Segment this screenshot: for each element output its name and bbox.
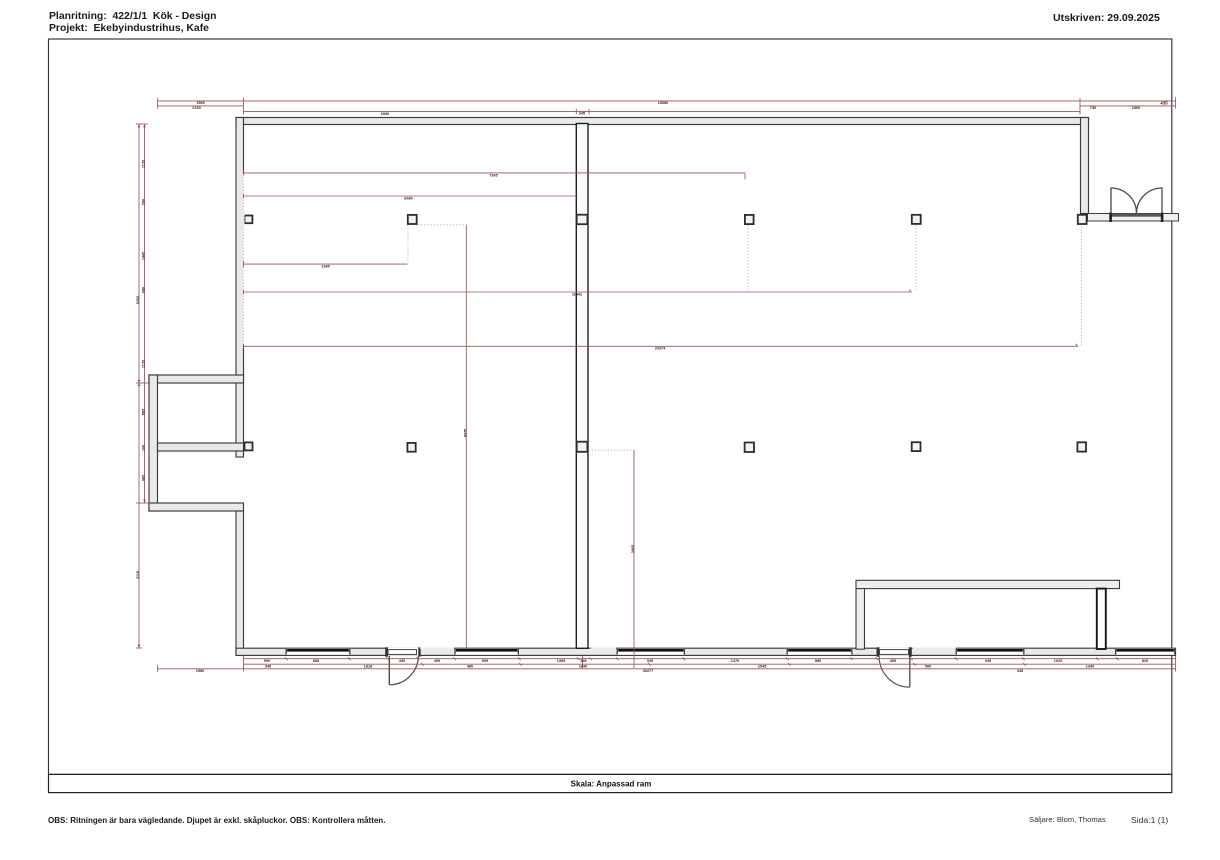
svg-text:5266: 5266 bbox=[136, 296, 140, 304]
svg-text:3118: 3118 bbox=[136, 571, 140, 579]
svg-text:1860: 1860 bbox=[1132, 106, 1140, 110]
svg-text:1818: 1818 bbox=[364, 665, 372, 669]
svg-text:160: 160 bbox=[142, 445, 146, 451]
svg-text:945: 945 bbox=[985, 659, 991, 663]
svg-text:7365: 7365 bbox=[489, 173, 497, 177]
svg-text:Skala: Anpassad ram: Skala: Anpassad ram bbox=[571, 779, 652, 788]
svg-text:1445: 1445 bbox=[142, 252, 146, 260]
svg-text:345: 345 bbox=[265, 665, 271, 669]
svg-text:2130: 2130 bbox=[192, 106, 200, 110]
svg-text:1470: 1470 bbox=[731, 659, 739, 663]
svg-text:885: 885 bbox=[815, 659, 821, 663]
svg-text:6080: 6080 bbox=[404, 196, 412, 200]
svg-text:1340: 1340 bbox=[1086, 665, 1094, 669]
svg-text:1980: 1980 bbox=[196, 101, 204, 105]
svg-text:430: 430 bbox=[399, 659, 405, 663]
svg-text:985: 985 bbox=[142, 475, 146, 481]
svg-text:1135: 1135 bbox=[142, 360, 146, 368]
svg-text:885: 885 bbox=[313, 659, 319, 663]
svg-text:1135: 1135 bbox=[142, 160, 146, 168]
svg-text:590: 590 bbox=[264, 659, 270, 663]
svg-text:3965: 3965 bbox=[631, 545, 635, 553]
svg-text:1640: 1640 bbox=[579, 665, 587, 669]
svg-text:20374: 20374 bbox=[655, 347, 666, 351]
svg-text:905: 905 bbox=[482, 659, 488, 663]
svg-text:435: 435 bbox=[1160, 100, 1168, 105]
svg-text:455: 455 bbox=[890, 659, 896, 663]
svg-text:740: 740 bbox=[1090, 106, 1096, 110]
svg-text:1980: 1980 bbox=[196, 669, 204, 673]
svg-text:2385: 2385 bbox=[321, 264, 329, 268]
svg-text:30277: 30277 bbox=[643, 669, 654, 673]
svg-text:885: 885 bbox=[142, 409, 146, 415]
svg-text:680: 680 bbox=[142, 287, 146, 293]
svg-text:945: 945 bbox=[647, 659, 653, 663]
svg-text:345: 345 bbox=[1017, 669, 1023, 673]
svg-text:1385: 1385 bbox=[557, 659, 565, 663]
svg-text:495: 495 bbox=[434, 659, 440, 663]
svg-text:345: 345 bbox=[579, 112, 585, 116]
svg-text:11541: 11541 bbox=[572, 292, 582, 296]
svg-text:1020: 1020 bbox=[1054, 659, 1062, 663]
svg-text:2045: 2045 bbox=[758, 665, 766, 669]
svg-text:820: 820 bbox=[1142, 659, 1148, 663]
svg-text:6080: 6080 bbox=[381, 112, 389, 116]
svg-text:590: 590 bbox=[142, 199, 146, 205]
svg-text:480: 480 bbox=[467, 665, 473, 669]
svg-text:345: 345 bbox=[580, 659, 586, 663]
svg-text:8475: 8475 bbox=[463, 429, 467, 437]
svg-text:500: 500 bbox=[925, 665, 931, 669]
svg-text:10680: 10680 bbox=[658, 101, 669, 105]
